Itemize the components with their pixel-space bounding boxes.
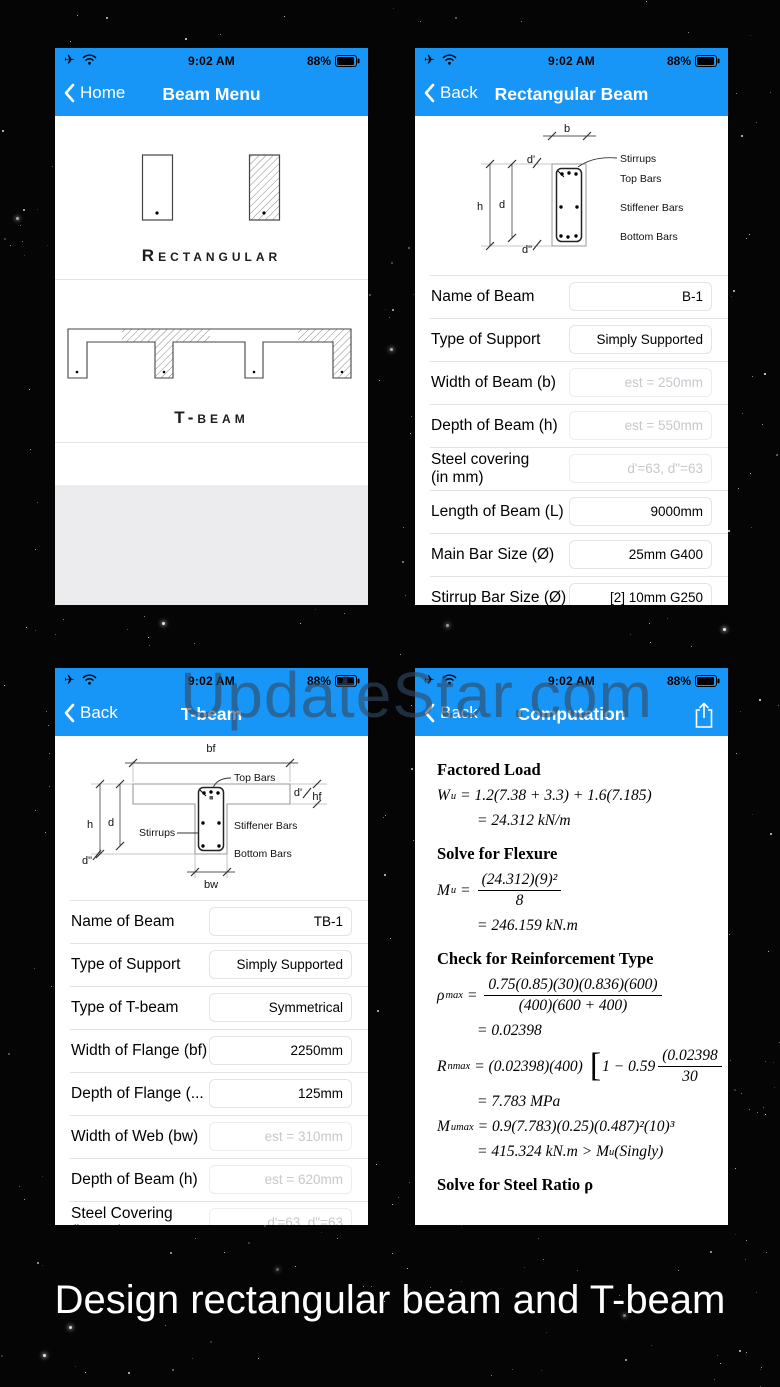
field-label: Name of Beam: [71, 913, 174, 931]
battery-percent: 88%: [667, 674, 691, 688]
equation-wu: Wu = 1.2(7.38 + 3.3) + 1.6(7.185): [437, 787, 728, 805]
equation-wu-result: = 24.312 kN/m: [437, 812, 728, 830]
svg-text:Stiffener Bars: Stiffener Bars: [234, 820, 297, 832]
field-input[interactable]: est = 550mm: [569, 411, 712, 440]
svg-text:d': d': [294, 787, 302, 799]
field-input[interactable]: Simply Supported: [569, 325, 712, 354]
field-label: Width of Web (bw): [71, 1128, 198, 1146]
field-label: Length of Beam (L): [431, 503, 564, 521]
rectangular-option-label: Rectangular: [55, 246, 368, 266]
svg-text:h: h: [477, 201, 483, 213]
form-row: Type of Support Simply Supported: [415, 318, 728, 361]
gray-footer: [55, 485, 368, 605]
field-input[interactable]: est = 250mm: [569, 368, 712, 397]
chevron-left-icon: [64, 83, 75, 103]
field-input[interactable]: 125mm: [209, 1079, 352, 1108]
status-bar: ✈ 9:02 AM 88%: [55, 668, 368, 695]
svg-text:d': d': [527, 154, 535, 166]
svg-text:Top Bars: Top Bars: [234, 772, 275, 784]
status-bar: ✈ 9:02 AM 88%: [415, 668, 728, 695]
field-input[interactable]: Symmetrical: [209, 993, 352, 1022]
equation-rnmax-result: = 7.783 MPa: [437, 1093, 728, 1111]
svg-text:d": d": [82, 855, 92, 867]
tbeam-form: Name of Beam TB-1 Type of Support Simply…: [55, 900, 368, 1225]
page-title: Beam Menu: [95, 84, 328, 105]
battery-icon: [335, 675, 360, 687]
section-heading: Solve for Flexure: [437, 844, 728, 864]
svg-text:d": d": [522, 244, 532, 256]
equation-mu: Mu = (24.312)(9)²8: [437, 871, 728, 910]
svg-text:Bottom Bars: Bottom Bars: [620, 231, 678, 243]
section-heading: Solve for Steel Ratio ρ: [437, 1175, 728, 1195]
computation-content: Factored Load Wu = 1.2(7.38 + 3.3) + 1.6…: [415, 736, 728, 1195]
field-input[interactable]: d'=63, d"=63: [209, 1208, 352, 1225]
equation-mumax-result: = 415.324 kN.m > Mu (Singly): [437, 1143, 728, 1161]
form-row: Name of Beam B-1: [415, 275, 728, 318]
equation-mu-result: = 246.159 kN.m: [437, 917, 728, 935]
form-row: Depth of Beam (h) est = 620mm: [55, 1158, 368, 1201]
tbeam-diagram: bf Top Bars d' hf h d Stirrups S: [55, 738, 368, 893]
field-input[interactable]: TB-1: [209, 907, 352, 936]
field-input[interactable]: Simply Supported: [209, 950, 352, 979]
rectangular-beam-diagram: b h d d' d" Stirrups Top Bars Stiffener …: [415, 122, 728, 274]
field-input[interactable]: [2] 10mm G250: [569, 583, 712, 605]
form-row: Width of Beam (b) est = 250mm: [415, 361, 728, 404]
status-bar: ✈ 9:02 AM 88%: [55, 48, 368, 75]
form-row: Depth of Beam (h) est = 550mm: [415, 404, 728, 447]
chevron-left-icon: [424, 703, 435, 723]
tbeam-option-label: T-beam: [55, 408, 368, 428]
section-heading: Factored Load: [437, 760, 728, 780]
svg-text:Stirrups: Stirrups: [139, 827, 175, 839]
screen-tbeam: ✈ 9:02 AM 88% Back T-beam bf Top: [55, 668, 368, 1225]
status-bar: ✈ 9:02 AM 88%: [415, 48, 728, 75]
equation-rho-result: = 0.02398: [437, 1022, 728, 1040]
form-row: Length of Beam (L) 9000mm: [415, 490, 728, 533]
field-label: Type of Support: [71, 956, 180, 974]
field-label: Name of Beam: [431, 288, 534, 306]
battery-percent: 88%: [307, 674, 331, 688]
form-row: Steel Covering (in mm) d'=63, d"=63: [55, 1201, 368, 1225]
field-input[interactable]: B-1: [569, 282, 712, 311]
tbeam-section-drawing: [55, 328, 368, 380]
field-input[interactable]: 9000mm: [569, 497, 712, 526]
svg-text:h: h: [87, 819, 93, 831]
equation-mumax: Mumax = 0.9(7.783)(0.25)(0.487)²(10)³: [437, 1118, 728, 1136]
equation-rho-max: ρmax = 0.75(0.85)(30)(0.836)(600)(400)(6…: [437, 976, 728, 1015]
svg-text:Top Bars: Top Bars: [620, 173, 661, 185]
screen-computation: ✈ 9:02 AM 88% Back Computation Factored …: [415, 668, 728, 1225]
svg-text:d: d: [499, 199, 505, 211]
form-row: Steel covering (in mm) d'=63, d"=63: [415, 447, 728, 490]
svg-text:Bottom Bars: Bottom Bars: [234, 848, 292, 860]
field-input[interactable]: est = 310mm: [209, 1122, 352, 1151]
battery-percent: 88%: [307, 54, 331, 68]
form-row: Type of T-beam Symmetrical: [55, 986, 368, 1029]
svg-text:bf: bf: [206, 743, 216, 755]
field-label: Type of Support: [431, 331, 540, 349]
field-input[interactable]: d'=63, d"=63: [569, 454, 712, 483]
svg-text:Stiffener Bars: Stiffener Bars: [620, 202, 683, 214]
form-row: Stirrup Bar Size (Ø) [2] 10mm G250: [415, 576, 728, 605]
form-row: Depth of Flange (... 125mm: [55, 1072, 368, 1115]
field-label: Depth of Beam (h): [71, 1171, 198, 1189]
field-label: Depth of Beam (h): [431, 417, 558, 435]
field-label: Steel covering (in mm): [431, 451, 529, 487]
form-row: Width of Flange (bf) 2250mm: [55, 1029, 368, 1072]
nav-bar: Back Rectangular Beam: [415, 75, 728, 116]
form-row: Name of Beam TB-1: [55, 900, 368, 943]
field-label: Steel Covering (in mm): [71, 1205, 173, 1225]
form-row: Type of Support Simply Supported: [55, 943, 368, 986]
divider: [55, 279, 368, 280]
share-icon: [692, 702, 716, 729]
page-title: T-beam: [95, 704, 328, 725]
field-label: Type of T-beam: [71, 999, 178, 1017]
menu-option-tbeam[interactable]: T-beam: [55, 328, 368, 428]
page-title: Computation: [455, 704, 688, 725]
nav-bar: Back Computation: [415, 695, 728, 736]
form-row: Main Bar Size (Ø) 25mm G400: [415, 533, 728, 576]
image-caption: Design rectangular beam and T-beam: [0, 1278, 780, 1323]
svg-text:Stirrups: Stirrups: [620, 153, 656, 165]
field-label: Stirrup Bar Size (Ø): [431, 589, 566, 605]
menu-option-rectangular[interactable]: Rectangular: [55, 154, 368, 266]
field-input[interactable]: 25mm G400: [569, 540, 712, 569]
share-button[interactable]: [692, 702, 716, 734]
equation-rnmax: Rnmax = (0.02398)(400) [ 1 − 0.59 (0.023…: [437, 1047, 728, 1086]
field-label: Main Bar Size (Ø): [431, 546, 554, 564]
screen-rectangular-beam: ✈ 9:02 AM 88% Back Rectangular Beam b: [415, 48, 728, 605]
divider: [55, 442, 368, 443]
field-input[interactable]: 2250mm: [209, 1036, 352, 1065]
field-label: Width of Beam (b): [431, 374, 556, 392]
svg-text:b: b: [564, 123, 570, 135]
nav-bar: Back T-beam: [55, 695, 368, 736]
field-input[interactable]: est = 620mm: [209, 1165, 352, 1194]
screen-beam-menu: ✈ 9:02 AM 88% Home Beam Menu Rectangular: [55, 48, 368, 605]
battery-icon: [695, 55, 720, 67]
field-label: Depth of Flange (...: [71, 1085, 204, 1103]
rectangular-section-drawing: [55, 154, 368, 222]
svg-text:bw: bw: [204, 879, 218, 891]
section-heading: Check for Reinforcement Type: [437, 949, 728, 969]
battery-icon: [335, 55, 360, 67]
battery-icon: [695, 675, 720, 687]
page-title: Rectangular Beam: [455, 84, 688, 105]
svg-text:d: d: [108, 817, 114, 829]
chevron-left-icon: [424, 83, 435, 103]
field-label: Width of Flange (bf): [71, 1042, 207, 1060]
rect-beam-form: Name of Beam B-1 Type of Support Simply …: [415, 275, 728, 605]
nav-bar: Home Beam Menu: [55, 75, 368, 116]
form-row: Width of Web (bw) est = 310mm: [55, 1115, 368, 1158]
chevron-left-icon: [64, 703, 75, 723]
svg-text:hf: hf: [312, 791, 322, 803]
battery-percent: 88%: [667, 54, 691, 68]
